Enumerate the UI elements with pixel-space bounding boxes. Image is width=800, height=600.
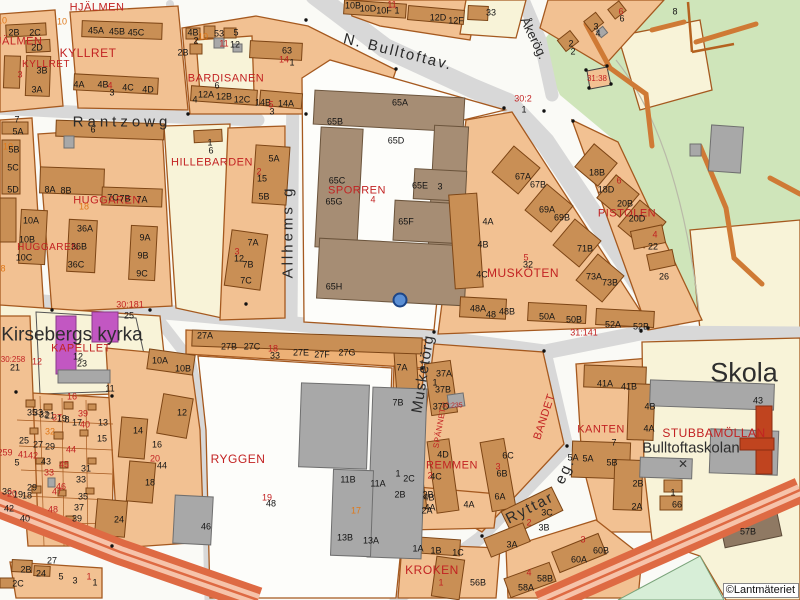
- copyright-notice: ©Lantmäteriet: [723, 583, 799, 598]
- map-canvas[interactable]: HJÄLMENHJÄLMENKYLLRETKYLLRETBARDISANENHI…: [0, 0, 800, 600]
- parcel-bardisanen-yard: [196, 36, 254, 94]
- map-marker: [393, 293, 408, 308]
- parcel-huggaren: [38, 126, 172, 312]
- parcel-31-38: [587, 67, 611, 89]
- parcel-hillebarden: [164, 124, 230, 318]
